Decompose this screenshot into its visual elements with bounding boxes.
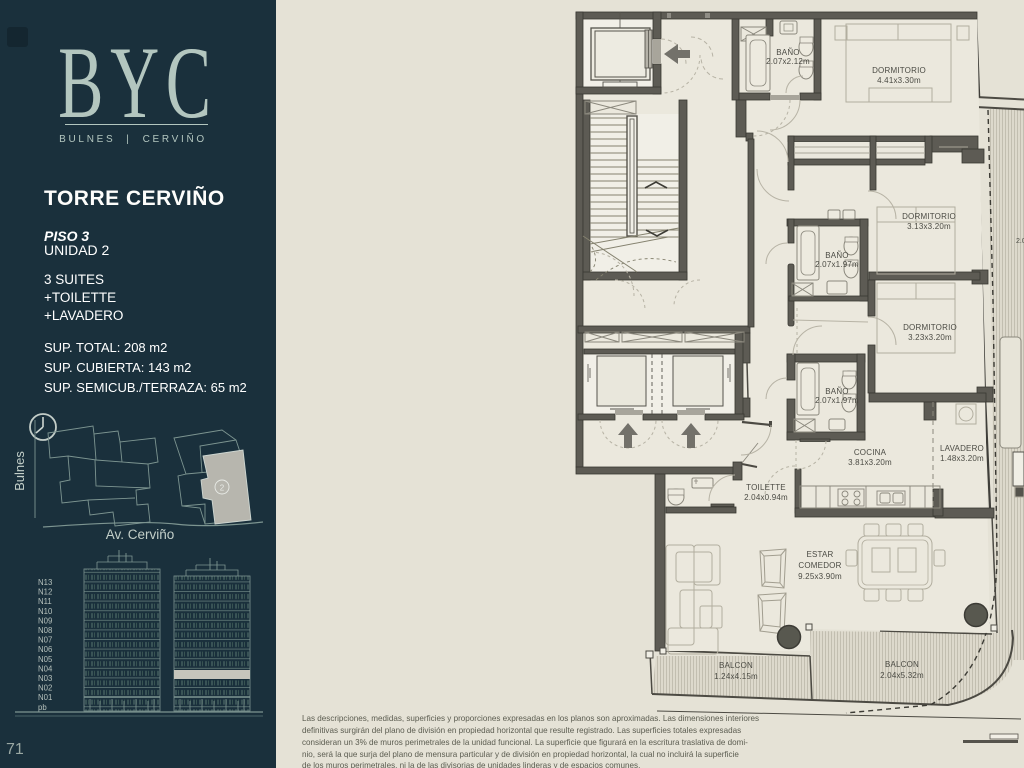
svg-text:BALCON: BALCON [885,660,919,669]
svg-text:DORMITORIO: DORMITORIO [903,323,957,332]
svg-text:Las descripciones, medidas, su: Las descripciones, medidas, superficies … [302,714,759,723]
svg-text:de los muros perimetrales, ni: de los muros perimetrales, ni la de las … [302,761,640,768]
svg-text:consideran un 3% de muros peri: consideran un 3% de muros perimetrales d… [302,738,748,747]
svg-text:2.04x0.94m: 2.04x0.94m [744,493,788,502]
svg-text:2.07x1.97m: 2.07x1.97m [815,396,859,405]
svg-text:BALCON: BALCON [719,661,753,670]
svg-text:DORMITORIO: DORMITORIO [872,66,926,75]
svg-text:2.07x1.97m: 2.07x1.97m [815,260,859,269]
svg-text:1.24x4.15m: 1.24x4.15m [714,672,758,681]
svg-text:3.23x3.20m: 3.23x3.20m [908,333,952,342]
svg-text:3.81x3.20m: 3.81x3.20m [848,458,892,467]
svg-text:1.48x3.20m: 1.48x3.20m [940,454,984,463]
svg-text:2.0: 2.0 [1016,238,1024,245]
svg-text:COMEDOR: COMEDOR [798,561,841,570]
svg-text:TOILETTE: TOILETTE [746,483,786,492]
svg-text:BAÑO: BAÑO [825,387,848,396]
svg-text:2.07x2.12m: 2.07x2.12m [766,57,810,66]
svg-text:definitivas surgirán del plano: definitivas surgirán del plano de divisi… [302,726,741,735]
svg-text:DORMITORIO: DORMITORIO [902,212,956,221]
svg-text:BAÑO: BAÑO [776,48,799,57]
svg-text:COCINA: COCINA [854,448,887,457]
svg-text:3.13x3.20m: 3.13x3.20m [907,222,951,231]
svg-text:BAÑO: BAÑO [825,251,848,260]
svg-text:9.25x3.90m: 9.25x3.90m [798,572,842,581]
svg-text:nio, será la que surja del pla: nio, será la que surja del plano de mens… [302,750,739,759]
svg-text:2.04x5.32m: 2.04x5.32m [880,671,924,680]
svg-text:4.41x3.30m: 4.41x3.30m [877,76,921,85]
svg-text:LAVADERO: LAVADERO [940,444,984,453]
svg-text:ESTAR: ESTAR [806,550,833,559]
